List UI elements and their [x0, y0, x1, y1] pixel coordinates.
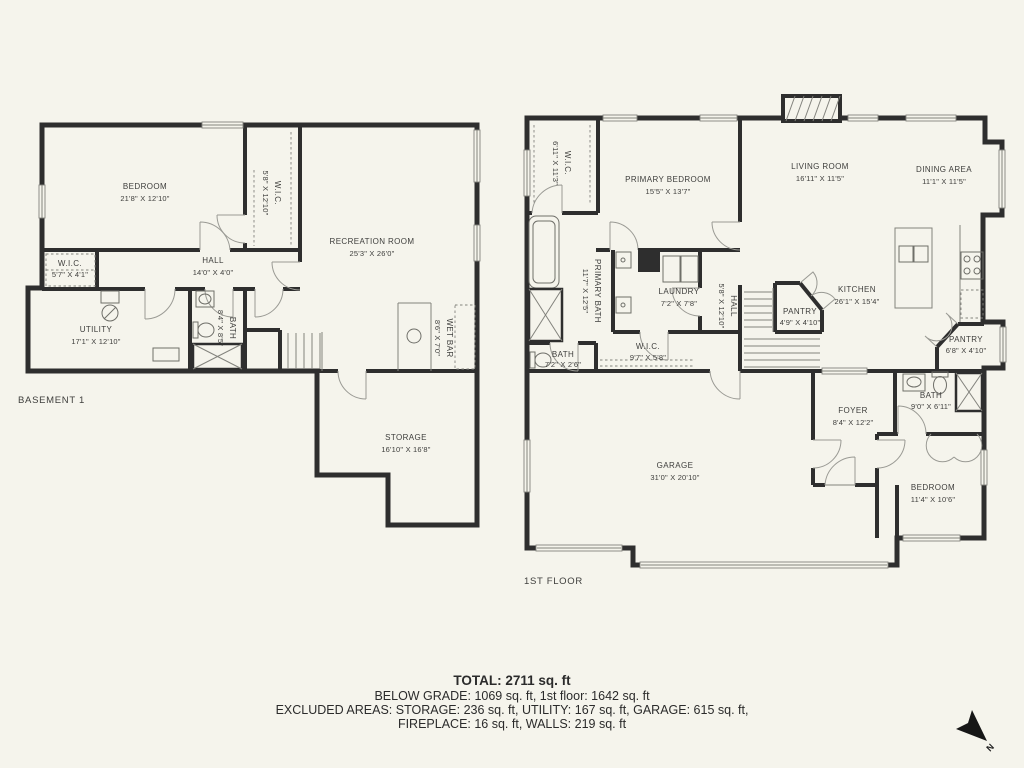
room-label-pantry2: PANTRY — [949, 335, 983, 344]
room-dims-bath: 7'2" X 2'6" — [545, 360, 581, 369]
room-dims-pantry: 4'9" X 4'10" — [780, 318, 821, 327]
first-floor-stairs — [744, 288, 820, 367]
wet-bar-cabinet — [455, 305, 475, 369]
room-dims-wic2: 5'7" X 4'1" — [52, 270, 88, 279]
kitchen-island — [895, 228, 932, 308]
room-label-hall: HALL — [729, 295, 738, 317]
room-label-hall: HALL — [202, 256, 224, 265]
room-label-bedroom: BEDROOM — [911, 483, 955, 492]
room-label-wic2: W.I.C. — [636, 342, 660, 351]
room-label-laundry: LAUNDRY — [659, 287, 700, 296]
room-dims-bedroom: 11'4" X 10'6" — [911, 495, 956, 504]
room-dims-living-room: 16'11" X 11'5" — [796, 174, 844, 183]
toilet — [530, 352, 535, 368]
door-arc — [712, 222, 740, 250]
room-label-foyer: FOYER — [838, 406, 868, 415]
dryer — [681, 256, 698, 282]
chase — [638, 248, 660, 272]
closet-rod — [254, 132, 291, 246]
room-dims-primary-bedroom: 15'5" X 13'7" — [646, 187, 691, 196]
first-floor-label: 1ST FLOOR — [524, 576, 583, 587]
room-label-wet-bar: WET BAR — [445, 318, 454, 357]
door-arc — [255, 289, 283, 317]
floor-plan-page: BEDROOM 21'8" X 12'10" W.I.C. 5'8" X 12'… — [0, 0, 1024, 768]
first-floor-labels: W.I.C. 6'11" X 11'3" PRIMARY BEDROOM 15'… — [524, 141, 986, 587]
room-dims-storage: 16'10" X 16'8" — [381, 445, 430, 454]
basement-stairs — [288, 332, 322, 371]
water-heater — [153, 348, 179, 361]
basement-interior-walls — [42, 125, 477, 371]
basement-plan: BEDROOM 21'8" X 12'10" W.I.C. 5'8" X 12'… — [18, 122, 480, 525]
stove — [961, 252, 983, 279]
utility-equipment — [101, 291, 119, 303]
room-dims-garage: 31'0" X 20'10" — [650, 473, 699, 482]
room-dims-bath: 8'4" X 8'5" — [216, 310, 225, 346]
summary-below-grade: BELOW GRADE: 1069 sq. ft, 1st floor: 164… — [0, 689, 1024, 703]
door-arc — [710, 371, 740, 399]
room-label-wic: W.I.C. — [273, 181, 282, 205]
room-dims-bedroom: 21'8" X 12'10" — [120, 194, 169, 203]
room-label-bedroom: BEDROOM — [123, 182, 167, 191]
room-dims-bath2: 9'0" X 6'11" — [911, 402, 951, 411]
wet-bar-counter — [398, 303, 431, 371]
wet-bar-sink — [407, 329, 421, 343]
basement-floor-label: BASEMENT 1 — [18, 395, 85, 406]
door-arc — [145, 289, 175, 319]
toilet — [193, 322, 198, 338]
room-dims-recreation: 25'3" X 26'0" — [350, 249, 395, 258]
room-label-pantry: PANTRY — [783, 307, 817, 316]
door-arc — [813, 440, 841, 468]
room-dims-hall: 5'8" X 12'10" — [717, 284, 726, 329]
room-label-recreation: RECREATION ROOM — [330, 237, 415, 246]
room-dims-pantry2: 6'8" X 4'10" — [946, 346, 987, 355]
room-dims-kitchen: 26'1" X 15'4" — [835, 297, 880, 306]
room-label-wic: W.I.C. — [563, 151, 572, 175]
laundry-counter — [616, 297, 631, 313]
room-label-utility: UTILITY — [80, 325, 113, 334]
room-dims-dining-area: 11'1" X 11'5" — [922, 177, 966, 186]
room-label-bath: BATH — [552, 350, 574, 359]
first-floor-plan: W.I.C. 6'11" X 11'3" PRIMARY BEDROOM 15'… — [524, 96, 1006, 587]
room-dims-laundry: 7'2" X 7'8" — [661, 299, 697, 308]
summary-excluded-2: FIREPLACE: 16 sq. ft, WALLS: 219 sq. ft — [0, 717, 1024, 731]
door-arc — [532, 185, 562, 213]
first-floor-interior-walls — [527, 118, 984, 538]
door-arc — [272, 262, 300, 290]
room-label-bath2: BATH — [920, 391, 942, 400]
room-label-garage: GARAGE — [657, 461, 694, 470]
room-dims-foyer: 8'4" X 12'2" — [833, 418, 874, 427]
room-label-primary-bedroom: PRIMARY BEDROOM — [625, 175, 711, 184]
room-dims-primary-bath: 11'7" X 12'5" — [581, 269, 590, 314]
room-dims-wic: 5'8" X 12'10" — [261, 171, 270, 216]
room-label-storage: STORAGE — [385, 433, 427, 442]
closet-bifold-doors — [926, 434, 982, 462]
door-arc — [200, 222, 230, 250]
room-dims-wic: 6'11" X 11'3" — [551, 141, 560, 185]
room-dims-utility: 17'1" X 12'10" — [71, 337, 120, 346]
room-label-kitchen: KITCHEN — [838, 285, 876, 294]
basement-labels: BEDROOM 21'8" X 12'10" W.I.C. 5'8" X 12'… — [18, 171, 454, 455]
door-arc — [338, 371, 366, 399]
room-label-dining-area: DINING AREA — [916, 165, 972, 174]
summary-excluded-1: EXCLUDED AREAS: STORAGE: 236 sq. ft, UTI… — [0, 703, 1024, 717]
first-floor-doors — [532, 185, 982, 485]
room-label-primary-bath: PRIMARY BATH — [593, 259, 602, 323]
room-dims-hall: 14'0" X 4'0" — [193, 268, 234, 277]
laundry-sink — [616, 252, 631, 268]
north-label: N — [984, 742, 996, 754]
door-arc — [825, 457, 855, 485]
door-arc — [610, 222, 638, 250]
floor-plan-canvas: BEDROOM 21'8" X 12'10" W.I.C. 5'8" X 12'… — [0, 0, 1024, 768]
refrigerator — [961, 290, 983, 318]
room-dims-wic2: 9'7" X 5'8" — [630, 353, 666, 362]
area-summary: TOTAL: 2711 sq. ft BELOW GRADE: 1069 sq.… — [0, 674, 1024, 731]
room-label-living-room: LIVING ROOM — [791, 162, 849, 171]
summary-total: TOTAL: 2711 sq. ft — [0, 674, 1024, 689]
door-arc — [217, 215, 245, 243]
room-label-wic2: W.I.C. — [58, 259, 82, 268]
room-dims-wet-bar: 8'6" X 7'0" — [433, 320, 442, 356]
washer — [663, 256, 680, 282]
island-sink — [899, 246, 913, 262]
door-arc — [877, 440, 905, 468]
room-label-bath: BATH — [228, 317, 237, 339]
